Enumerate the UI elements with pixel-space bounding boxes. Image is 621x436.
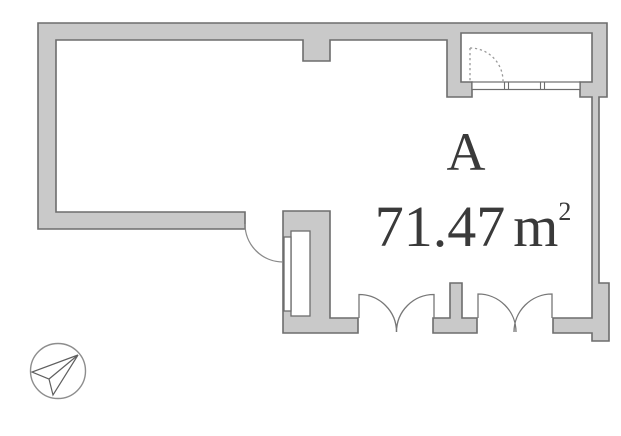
window [472,82,580,90]
pipe-shaft-interior [291,231,310,316]
compass-icon [31,344,86,399]
french-door-left-pair-right-leaf [397,295,435,333]
floor-plan: A 71.47m2 [0,0,621,436]
area-superscript: 2 [558,197,571,226]
french-door-left-pair-left-leaf [359,295,397,333]
area-value: 71.47 [375,194,506,259]
walls [38,23,609,341]
interior-door-swing-arc [245,224,283,262]
window-frame [472,82,580,90]
area-unit: m [513,194,558,259]
center-door-pier [433,283,477,333]
entry-door [470,48,503,81]
french-door-right-pair-left-leaf [478,294,516,332]
french-door-right-pair-right-leaf [514,294,552,332]
area-label: 71.47m2 [375,194,572,259]
floor-plan-drawing: A 71.47m2 [0,0,621,436]
shaft-door-panel [284,237,291,311]
entry-door-swing-arc [470,48,503,81]
compass-arrow [32,355,78,395]
unit-label: A [447,122,486,182]
